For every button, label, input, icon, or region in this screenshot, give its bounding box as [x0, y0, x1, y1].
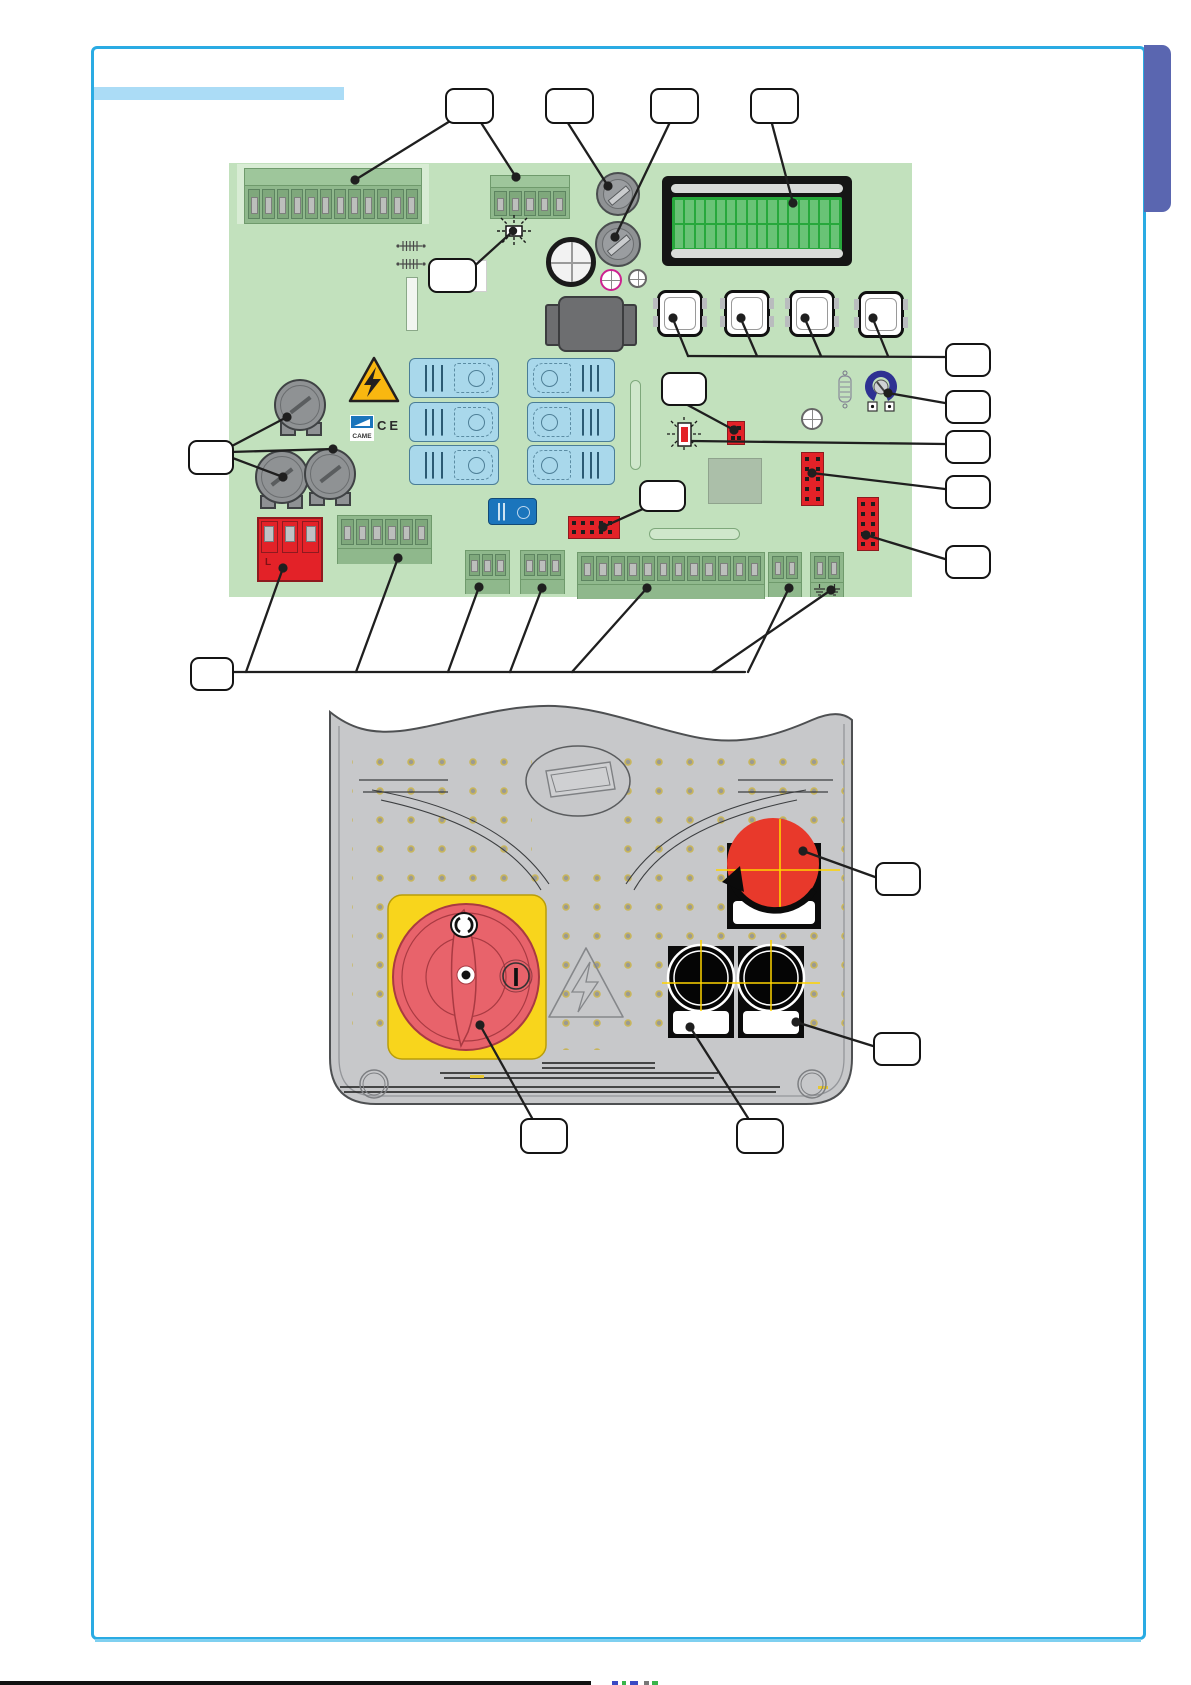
- callout-trimmer: [945, 390, 991, 424]
- knob-label-strip: [673, 1011, 729, 1034]
- callout-signal-led: [428, 258, 477, 293]
- cover-figure: I: [0, 0, 1191, 1685]
- svg-text:I: I: [512, 962, 519, 992]
- main-disconnect-switch: I: [388, 895, 546, 1059]
- callout-programming-buttons: [945, 343, 991, 377]
- selector-knobs: [662, 940, 820, 1038]
- callout-memory-connector: [661, 372, 707, 406]
- callout-pin-connector-lower: [945, 545, 991, 579]
- callout-bottom-terminals: [190, 657, 234, 691]
- callout-board-led: [945, 430, 991, 464]
- callout-jumper: [639, 480, 686, 512]
- callout-line-fuse: [545, 88, 594, 124]
- callout-emergency-stop: [875, 862, 921, 896]
- callout-display: [750, 88, 799, 124]
- callout-knob-label: [736, 1118, 784, 1154]
- callout-main-switch: [520, 1118, 568, 1154]
- knob-label-strip: [743, 1011, 799, 1034]
- manual-page: CAME CE: [0, 0, 1191, 1685]
- callout-terminal-blocks: [445, 88, 494, 124]
- callout-capacitors: [188, 440, 234, 475]
- callout-pin-connector-upper: [945, 475, 991, 509]
- callout-accessories-fuse: [650, 88, 699, 124]
- callout-selector-knobs: [873, 1032, 921, 1066]
